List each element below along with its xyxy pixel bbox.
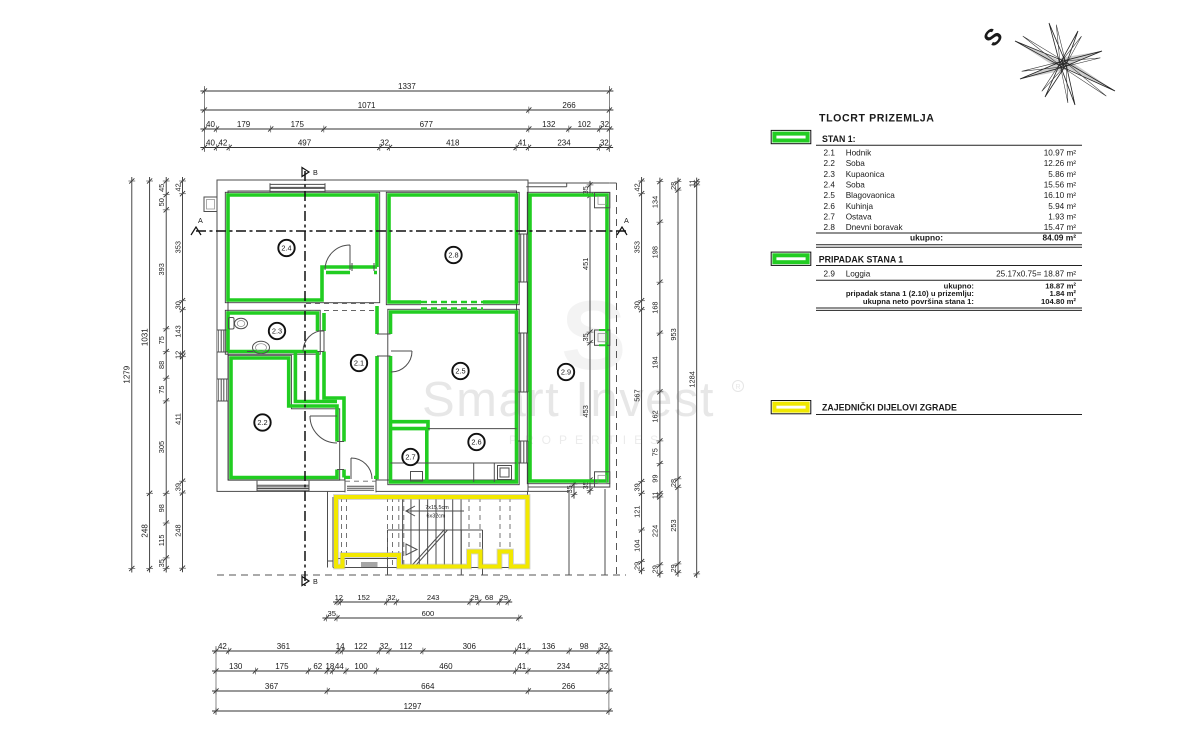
svg-text:460: 460 xyxy=(439,662,453,671)
svg-text:115: 115 xyxy=(157,535,166,547)
svg-text:75: 75 xyxy=(651,448,660,456)
svg-text:2.6: 2.6 xyxy=(471,438,481,447)
svg-text:B: B xyxy=(313,577,318,586)
svg-text:2.7: 2.7 xyxy=(824,212,836,221)
svg-text:7x15,5cm: 7x15,5cm xyxy=(425,505,449,511)
svg-text:2.1: 2.1 xyxy=(354,359,364,368)
svg-text:42: 42 xyxy=(632,183,641,191)
svg-text:Kupaonica: Kupaonica xyxy=(846,170,885,179)
svg-text:75: 75 xyxy=(157,385,166,393)
svg-text:11: 11 xyxy=(688,179,697,187)
svg-text:152: 152 xyxy=(357,593,370,602)
svg-text:39: 39 xyxy=(173,483,182,491)
svg-text:248: 248 xyxy=(173,524,182,536)
svg-text:41: 41 xyxy=(518,139,527,148)
svg-text:STAN 1:: STAN 1: xyxy=(822,134,856,144)
svg-text:98: 98 xyxy=(157,504,166,512)
svg-text:40: 40 xyxy=(206,139,215,148)
svg-text:168: 168 xyxy=(651,301,660,313)
svg-text:367: 367 xyxy=(265,682,279,691)
svg-text:1.93 m²: 1.93 m² xyxy=(1048,212,1076,221)
svg-text:TLOCRT PRIZEMLJA: TLOCRT PRIZEMLJA xyxy=(819,113,935,125)
svg-text:1031: 1031 xyxy=(140,328,149,346)
svg-text:2.4: 2.4 xyxy=(281,244,291,253)
svg-text:14: 14 xyxy=(336,642,345,651)
svg-text:418: 418 xyxy=(446,139,460,148)
svg-text:29: 29 xyxy=(632,562,641,570)
svg-text:179: 179 xyxy=(237,120,251,129)
svg-text:42: 42 xyxy=(218,139,227,148)
svg-text:175: 175 xyxy=(275,662,289,671)
svg-text:15.47 m²: 15.47 m² xyxy=(1044,223,1077,232)
svg-text:1279: 1279 xyxy=(123,365,132,383)
svg-text:29: 29 xyxy=(651,565,660,573)
svg-text:50: 50 xyxy=(157,198,166,206)
svg-text:99: 99 xyxy=(651,474,660,482)
svg-text:42: 42 xyxy=(218,642,227,651)
svg-text:12: 12 xyxy=(335,593,343,602)
svg-text:44: 44 xyxy=(335,662,344,671)
svg-text:243: 243 xyxy=(427,593,440,602)
svg-text:35: 35 xyxy=(327,609,335,618)
svg-text:2.7: 2.7 xyxy=(405,453,415,462)
svg-text:104.80 m²: 104.80 m² xyxy=(1041,297,1076,306)
svg-text:39: 39 xyxy=(632,483,641,491)
svg-text:2.9: 2.9 xyxy=(824,270,836,279)
svg-text:84.09 m²: 84.09 m² xyxy=(1042,233,1076,243)
svg-text:122: 122 xyxy=(354,642,368,651)
svg-text:ukupna neto površina stana 1:: ukupna neto površina stana 1: xyxy=(863,297,974,306)
svg-text:234: 234 xyxy=(557,662,571,671)
svg-text:5.94 m²: 5.94 m² xyxy=(1048,202,1076,211)
svg-text:143: 143 xyxy=(173,325,182,337)
svg-text:112: 112 xyxy=(400,642,413,651)
svg-text:2.5: 2.5 xyxy=(824,191,836,200)
svg-text:ZAJEDNIČKI DIJELOVI ZGRADE: ZAJEDNIČKI DIJELOVI ZGRADE xyxy=(822,402,957,413)
svg-text:32: 32 xyxy=(387,593,395,602)
svg-text:28: 28 xyxy=(669,182,678,190)
svg-text:175: 175 xyxy=(291,120,305,129)
svg-text:88: 88 xyxy=(157,361,166,369)
svg-text:29: 29 xyxy=(669,564,678,572)
svg-text:1337: 1337 xyxy=(398,82,416,91)
svg-text:5.86 m²: 5.86 m² xyxy=(1048,170,1076,179)
svg-text:305: 305 xyxy=(157,441,166,453)
svg-text:PRIPADAK STANA 1: PRIPADAK STANA 1 xyxy=(819,255,903,265)
svg-text:253: 253 xyxy=(669,519,678,531)
svg-text:393: 393 xyxy=(157,263,166,275)
svg-text:30: 30 xyxy=(632,301,641,309)
svg-text:353: 353 xyxy=(173,241,182,253)
svg-text:234: 234 xyxy=(557,139,571,148)
svg-text:B: B xyxy=(313,168,318,177)
svg-text:29: 29 xyxy=(470,593,478,602)
svg-text:32: 32 xyxy=(380,642,389,651)
svg-text:121: 121 xyxy=(632,506,641,518)
svg-text:130: 130 xyxy=(229,662,243,671)
svg-text:Soba: Soba xyxy=(846,159,866,168)
svg-text:32: 32 xyxy=(599,642,608,651)
svg-text:15.56 m²: 15.56 m² xyxy=(1044,181,1077,190)
svg-text:28: 28 xyxy=(669,479,678,487)
svg-text:35: 35 xyxy=(581,186,590,194)
svg-text:102: 102 xyxy=(578,120,592,129)
svg-text:2.8: 2.8 xyxy=(824,223,836,232)
svg-text:266: 266 xyxy=(562,101,576,110)
svg-text:2.2: 2.2 xyxy=(257,418,267,427)
svg-text:40: 40 xyxy=(206,120,215,129)
svg-text:PROPERTIES: PROPERTIES xyxy=(509,433,666,447)
svg-text:A: A xyxy=(624,216,629,225)
svg-text:11: 11 xyxy=(651,491,660,499)
svg-text:2.6: 2.6 xyxy=(824,202,836,211)
svg-text:25.17x0.75= 18.87 m²: 25.17x0.75= 18.87 m² xyxy=(996,270,1076,279)
svg-text:100: 100 xyxy=(354,662,368,671)
svg-text:6x32cm: 6x32cm xyxy=(427,514,446,520)
svg-text:353: 353 xyxy=(632,241,641,253)
svg-text:35: 35 xyxy=(157,559,166,567)
svg-text:16.10 m²: 16.10 m² xyxy=(1044,191,1077,200)
svg-text:2.3: 2.3 xyxy=(824,170,836,179)
svg-text:29: 29 xyxy=(500,593,508,602)
svg-text:75: 75 xyxy=(157,336,166,344)
svg-text:Smart Invest: Smart Invest xyxy=(422,373,715,427)
svg-text:224: 224 xyxy=(651,525,660,537)
svg-text:30: 30 xyxy=(173,301,182,309)
svg-text:2.2: 2.2 xyxy=(824,159,836,168)
svg-text:198: 198 xyxy=(651,246,660,258)
svg-text:664: 664 xyxy=(421,682,435,691)
svg-text:12: 12 xyxy=(173,351,182,359)
svg-text:132: 132 xyxy=(542,120,556,129)
svg-text:A: A xyxy=(198,216,203,225)
svg-text:411: 411 xyxy=(173,413,182,425)
svg-text:194: 194 xyxy=(651,356,660,368)
svg-text:Soba: Soba xyxy=(846,181,866,190)
svg-text:12.26 m²: 12.26 m² xyxy=(1044,159,1077,168)
svg-text:677: 677 xyxy=(420,120,434,129)
svg-text:134: 134 xyxy=(651,196,660,208)
svg-text:248: 248 xyxy=(140,524,149,538)
svg-text:497: 497 xyxy=(298,139,312,148)
svg-text:32: 32 xyxy=(599,662,608,671)
svg-text:953: 953 xyxy=(669,328,678,340)
svg-text:451: 451 xyxy=(581,258,590,270)
svg-text:1297: 1297 xyxy=(404,702,422,711)
svg-text:2.1: 2.1 xyxy=(824,149,836,158)
svg-text:1071: 1071 xyxy=(358,101,376,110)
svg-text:68: 68 xyxy=(485,593,493,602)
svg-text:Hodnik: Hodnik xyxy=(846,149,872,158)
svg-text:136: 136 xyxy=(542,642,556,651)
svg-text:R: R xyxy=(735,384,740,391)
svg-text:41: 41 xyxy=(517,662,526,671)
svg-text:45: 45 xyxy=(157,184,166,192)
svg-text:Dnevni boravak: Dnevni boravak xyxy=(846,223,904,232)
svg-text:62: 62 xyxy=(313,662,322,671)
svg-text:2.4: 2.4 xyxy=(824,181,836,190)
svg-text:98: 98 xyxy=(580,642,589,651)
svg-text:2.3: 2.3 xyxy=(272,327,282,336)
svg-text:32: 32 xyxy=(600,139,609,148)
svg-text:Loggia: Loggia xyxy=(846,270,871,279)
svg-text:32: 32 xyxy=(600,120,609,129)
svg-text:306: 306 xyxy=(463,642,477,651)
svg-text:32: 32 xyxy=(380,139,389,148)
svg-text:Ostava: Ostava xyxy=(846,212,872,221)
svg-text:361: 361 xyxy=(277,642,291,651)
svg-text:41: 41 xyxy=(517,642,526,651)
svg-text:10.97 m²: 10.97 m² xyxy=(1044,149,1077,158)
svg-text:600: 600 xyxy=(422,609,435,618)
svg-text:Kuhinja: Kuhinja xyxy=(846,202,874,211)
svg-text:2.8: 2.8 xyxy=(448,251,458,260)
svg-text:18: 18 xyxy=(325,662,334,671)
svg-text:104: 104 xyxy=(632,540,641,552)
svg-text:ukupno:: ukupno: xyxy=(910,233,943,243)
svg-text:266: 266 xyxy=(562,682,576,691)
svg-text:42: 42 xyxy=(173,183,182,191)
svg-text:Blagovaonica: Blagovaonica xyxy=(846,191,896,200)
